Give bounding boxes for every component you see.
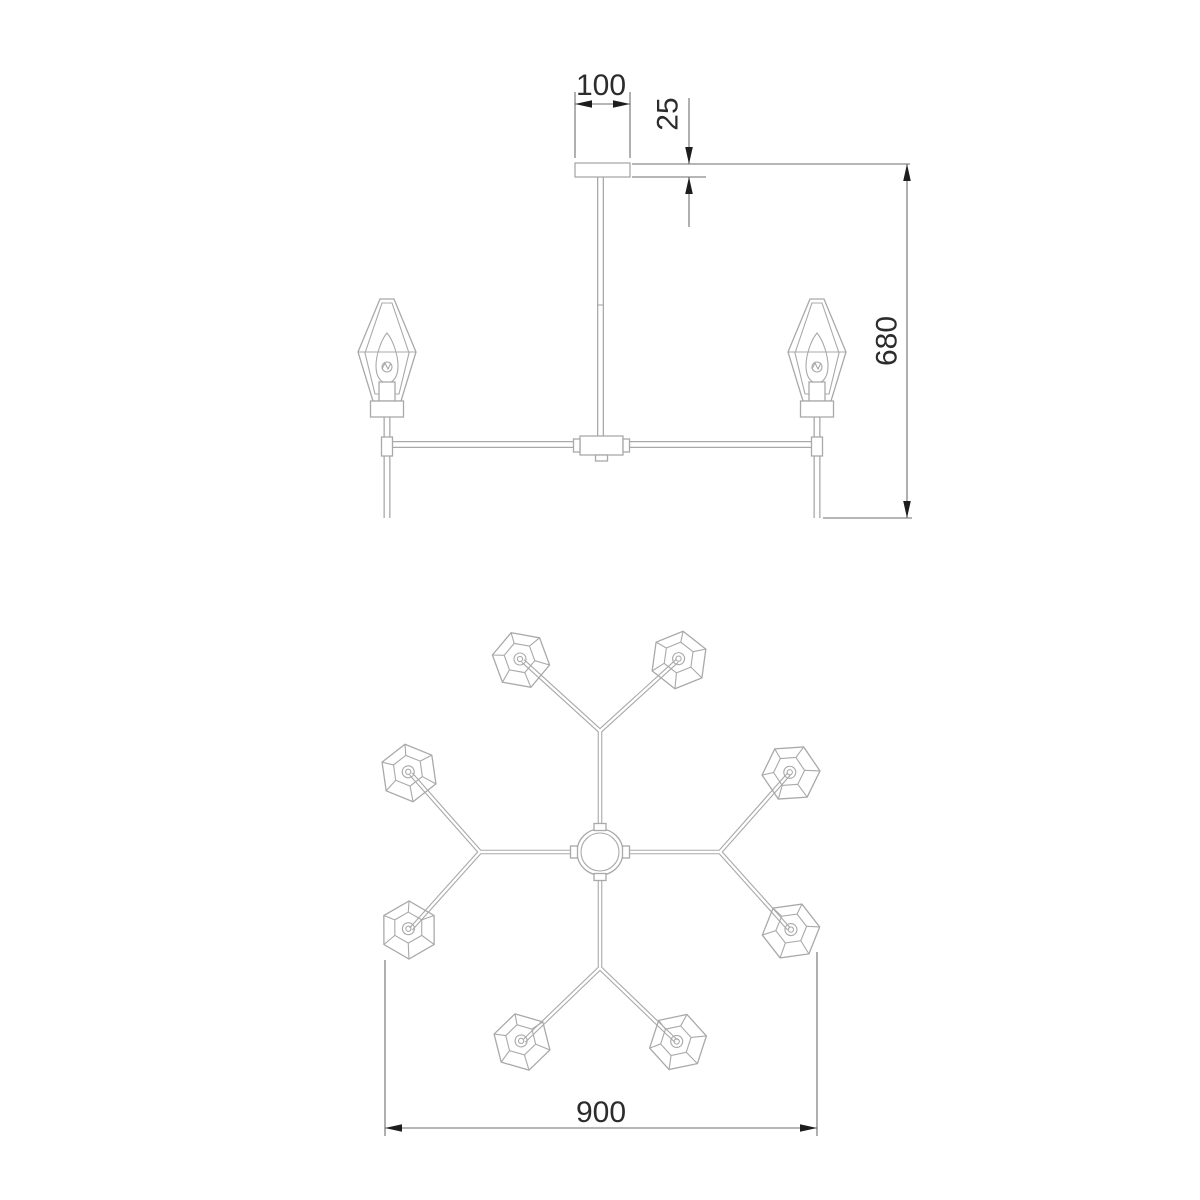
side-view	[358, 163, 846, 518]
dimension-diameter: 900	[385, 952, 817, 1136]
ring-connector-west	[571, 846, 578, 858]
arrowhead-up-icon	[685, 177, 693, 194]
arrowhead-down-icon	[903, 501, 911, 518]
arrowhead-left-icon	[385, 1124, 402, 1132]
ceiling-plate	[575, 163, 630, 177]
ring-connector-south	[594, 874, 606, 881]
ring-connector-east	[623, 846, 630, 858]
dimension-height: 680	[823, 164, 912, 518]
arrowhead-up-icon	[903, 164, 911, 181]
arrowhead-right-icon	[800, 1124, 817, 1132]
hub-left-tab	[574, 439, 581, 452]
hub-right-tab	[623, 439, 630, 452]
dimension-mount-width: 100	[575, 69, 630, 158]
dim-900-label: 900	[576, 1096, 626, 1129]
chandelier-dimension-diagram: 100 25 680 900	[0, 0, 1200, 1200]
technical-drawing-page: 100 25 680 900	[0, 0, 1200, 1200]
dim-100-label: 100	[576, 69, 626, 102]
arrowhead-down-icon	[685, 147, 693, 164]
ring-connector-north	[594, 824, 606, 831]
hub-bottom-tab	[596, 455, 608, 461]
dimension-mount-thickness: 25	[632, 97, 910, 227]
center-hub	[580, 436, 623, 455]
center-ring-outer	[577, 829, 623, 875]
dim-680-label: 680	[871, 316, 904, 366]
plan-view	[373, 622, 831, 1078]
dim-25-label: 25	[652, 97, 685, 130]
